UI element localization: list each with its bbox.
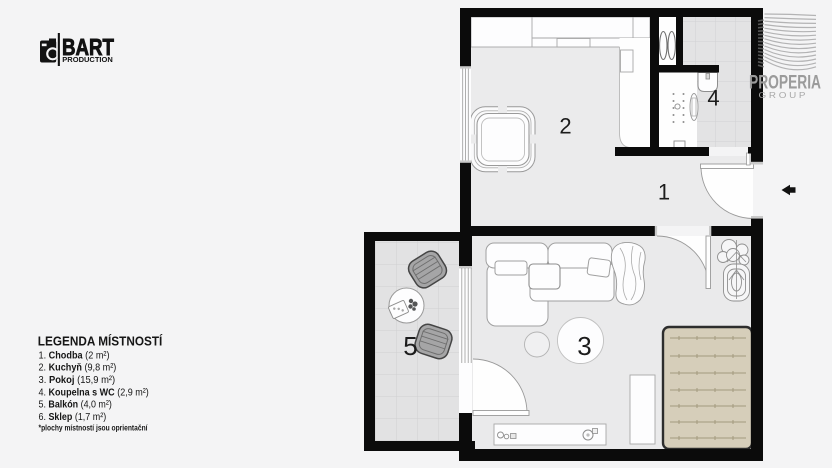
svg-text:6. Sklep (1,7 m²): 6. Sklep (1,7 m²) — [39, 412, 107, 423]
svg-text:LEGENDA MÍSTNOSTÍ: LEGENDA MÍSTNOSTÍ — [38, 334, 163, 349]
svg-text:G R O U P: G R O U P — [759, 91, 807, 100]
svg-text:1: 1 — [658, 180, 670, 205]
svg-text:1. Chodba (2 m²): 1. Chodba (2 m²) — [39, 350, 110, 361]
svg-text:BART: BART — [62, 34, 114, 60]
svg-text:*plochy místností jsou oprient: *plochy místností jsou oprientační — [39, 424, 149, 433]
svg-text:PRODUCTION: PRODUCTION — [62, 57, 113, 64]
svg-text:3. Pokoj (15,9 m²): 3. Pokoj (15,9 m²) — [39, 375, 116, 386]
svg-text:3: 3 — [577, 331, 591, 361]
svg-text:2. Kuchyň (9,8 m²): 2. Kuchyň (9,8 m²) — [39, 363, 117, 374]
svg-text:5: 5 — [403, 331, 417, 361]
svg-text:5. Balkón (4,0 m²): 5. Balkón (4,0 m²) — [39, 400, 112, 411]
svg-text:4: 4 — [707, 86, 719, 111]
svg-text:2: 2 — [559, 114, 571, 139]
svg-text:4. Koupelna s WC (2,9 m²): 4. Koupelna s WC (2,9 m²) — [39, 387, 149, 398]
